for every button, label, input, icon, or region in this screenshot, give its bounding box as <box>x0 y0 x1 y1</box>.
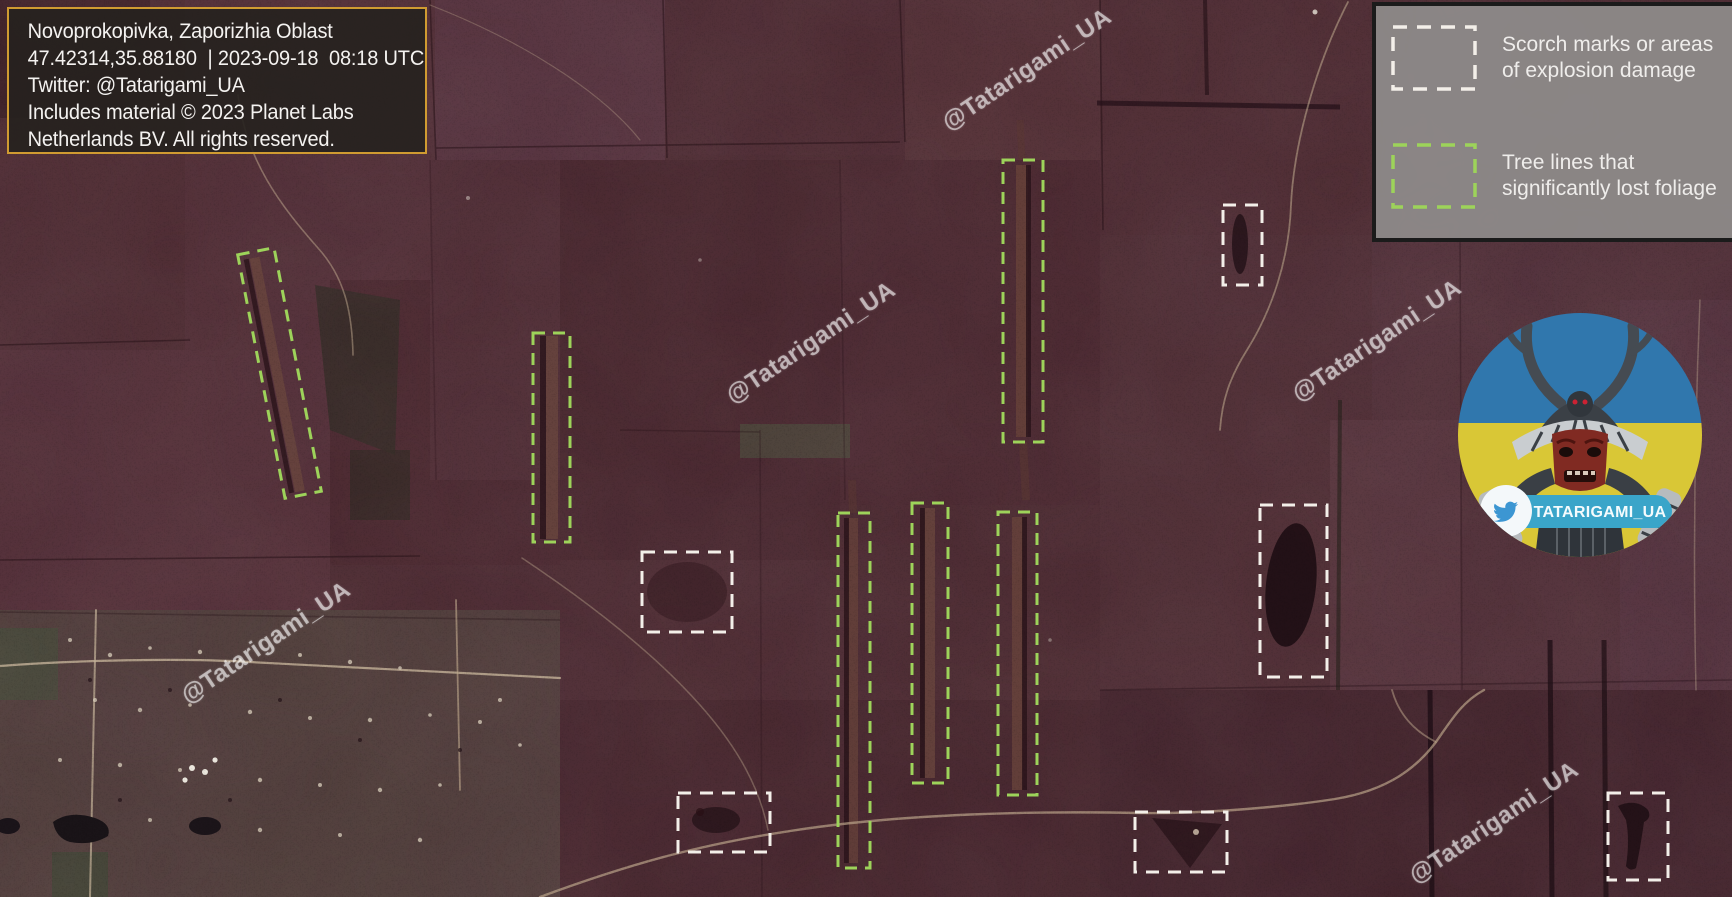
legend-label-scorch: Scorch marks or areas of explosion damag… <box>1502 32 1713 84</box>
legend-label-treeline: Tree lines that significantly lost folia… <box>1502 150 1717 202</box>
annotated-satellite-image: @Tatarigami_UA@Tatarigami_UA@Tatarigami_… <box>0 0 1732 897</box>
samurai-avatar: TATARIGAMI_UA <box>1457 312 1703 558</box>
coordinates-and-timestamp: 47.42314,35.88180 | 2023-09-18 08:18 UTC <box>28 45 396 72</box>
avatar: TATARIGAMI_UA <box>1457 312 1703 558</box>
scorch-swatch-icon <box>1390 24 1478 92</box>
location-title: Novoprokopivka, Zaporizhia Oblast <box>28 18 396 45</box>
twitter-handle: Twitter: @Tatarigami_UA <box>28 72 396 99</box>
info-box: Novoprokopivka, Zaporizhia Oblast 47.423… <box>7 7 427 154</box>
helmet-crest <box>1567 391 1593 417</box>
legend: Scorch marks or areas of explosion damag… <box>1372 2 1732 242</box>
legend-item-scorch: Scorch marks or areas of explosion damag… <box>1390 24 1713 92</box>
info-box-text: Novoprokopivka, Zaporizhia Oblast 47.423… <box>9 9 396 153</box>
copyright-line-2: Netherlands BV. All rights reserved. <box>28 126 396 153</box>
treeline-swatch-icon <box>1390 142 1478 210</box>
legend-item-treeline: Tree lines that significantly lost folia… <box>1390 142 1717 210</box>
copyright-line-1: Includes material © 2023 Planet Labs <box>28 99 396 126</box>
avatar-handle-text: TATARIGAMI_UA <box>1534 504 1667 521</box>
oni-face-mask <box>1552 429 1608 491</box>
